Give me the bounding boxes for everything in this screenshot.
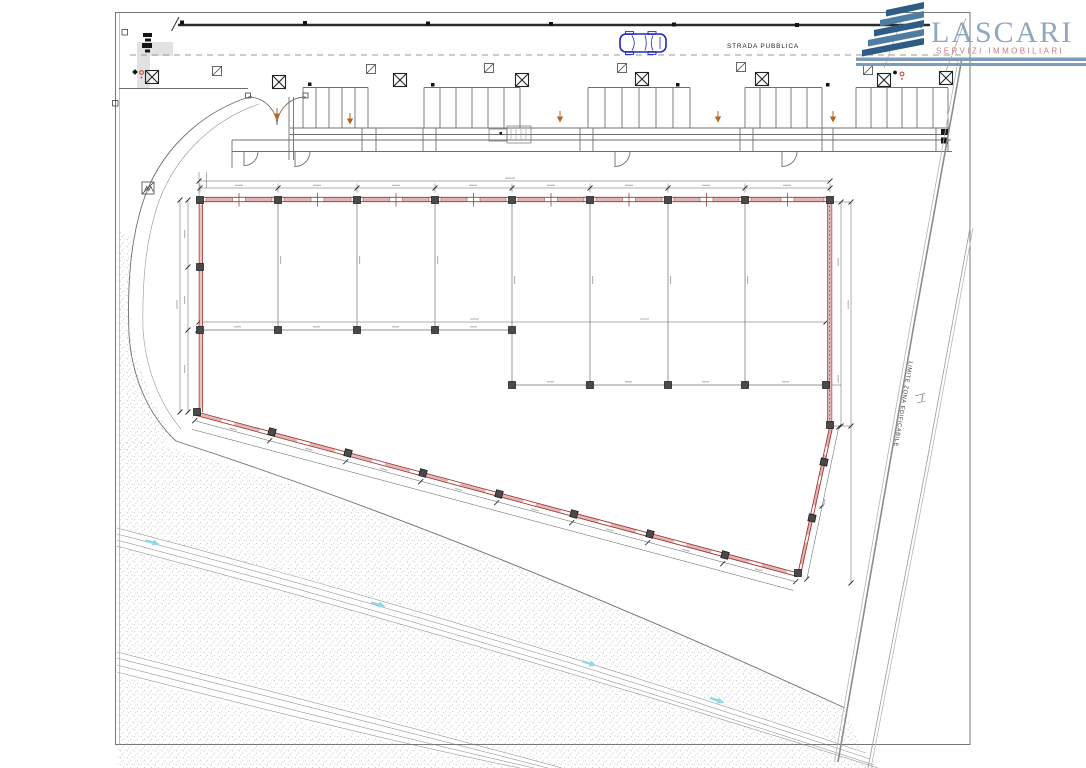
slashed-square-marker [213, 63, 873, 76]
parking-stalls [303, 88, 948, 129]
parking-area [232, 83, 952, 169]
direction-arrows [274, 108, 836, 125]
logo: LASCARI SERVIZI IMMOBILIARI [856, 2, 1086, 66]
logo-chevrons-icon [862, 2, 924, 57]
door-swing-arc [244, 152, 797, 167]
red-hydrant-marker [132, 69, 904, 80]
public-road: STRADA PUBBLICA [119, 17, 965, 89]
crossed-square-marker [146, 71, 953, 89]
embankment-area [117, 96, 880, 768]
double-swing-gate [246, 93, 309, 160]
boundary-label: LIMITE ZONA EDIFICABILE [892, 361, 913, 448]
car-icon [620, 32, 666, 55]
logo-underline-bar [856, 58, 1086, 62]
site-plan-drawing: STRADA PUBBLICA [0, 0, 1086, 768]
utility-symbols [113, 18, 967, 194]
site-plan-page: STRADA PUBBLICA [0, 0, 1086, 768]
logo-brand: LASCARI [931, 16, 1073, 49]
border-marker [122, 30, 128, 36]
paved-patch [137, 42, 173, 88]
walkway [232, 126, 952, 168]
buildable-zone-boundary: LIMITE ZONA EDIFICABILE [835, 58, 974, 768]
logo-tagline: SERVIZI IMMOBILIARI [936, 47, 1064, 56]
road-label: STRADA PUBBLICA [727, 43, 799, 50]
manhole-marker [142, 182, 154, 194]
logo-underline-bar [856, 63, 1086, 66]
